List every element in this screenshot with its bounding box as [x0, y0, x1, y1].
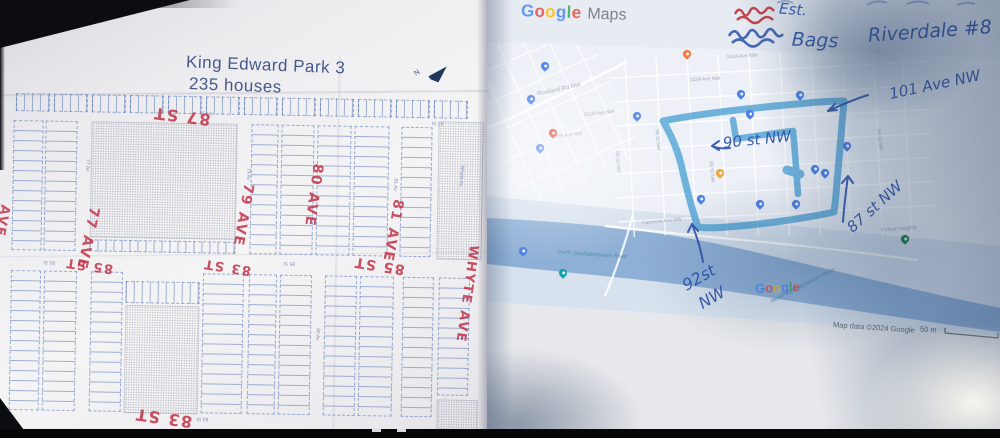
lot-block [201, 273, 244, 414]
handwritten-note: Bags [791, 31, 838, 52]
printed-street-label: 81 Av [392, 178, 398, 191]
stippled-block [436, 121, 483, 260]
lot-block [434, 100, 468, 119]
pen-ink-layer [487, 0, 1000, 438]
blue-scribble [729, 29, 783, 47]
north-arrow-icon: N [410, 63, 450, 90]
svg-text:N: N [413, 69, 421, 78]
lot-block [399, 127, 432, 258]
stippled-block [436, 399, 478, 430]
stippled-block [90, 121, 238, 240]
right-photo-google-map: Rowland Rd NW101A Ave NW100A Ave NW103A … [487, 0, 1000, 438]
handwritten-note: Est. [779, 2, 808, 19]
lot-block [54, 94, 88, 113]
dark-edge [0, 0, 340, 8]
pen-arrows [688, 95, 868, 262]
lot-block [16, 93, 50, 112]
printed-street-label: 85 St [43, 259, 55, 264]
lot-block [282, 98, 316, 117]
dark-edge [0, 0, 5, 170]
lot-block [244, 97, 278, 116]
left-photo-paper-map: King Edward Park 3 235 houses N 87 St87 … [0, 0, 487, 438]
printed-street-label: 83 St [197, 416, 209, 421]
printed-street-label: 77 Av [84, 159, 90, 172]
strip-tab [397, 429, 406, 432]
lot-block [126, 281, 200, 304]
red-scribble [735, 8, 774, 23]
printed-street-label: 87 St [432, 120, 444, 125]
king-edward-plat-map: King Edward Park 3 235 houses N 87 St87 … [0, 0, 487, 438]
lot-block [323, 275, 357, 416]
lot-block [278, 275, 312, 416]
photo-bottom-strip [0, 429, 1000, 438]
lot-block [42, 271, 77, 412]
lot-block [358, 276, 394, 417]
printed-street-label: 79 Av [245, 168, 251, 181]
lot-block [401, 277, 434, 418]
lot-block [247, 274, 277, 414]
lot-block [396, 100, 430, 119]
photo-of-two-paper-maps: King Edward Park 3 235 houses N 87 St87 … [0, 0, 1000, 438]
stippled-block [124, 305, 200, 414]
printed-street-label: 85 St [283, 260, 295, 265]
lot-block [89, 271, 123, 412]
scale-label: 50 m [920, 324, 937, 334]
printed-street-label: 80 Av [314, 328, 320, 341]
strip-tab [372, 429, 381, 432]
lot-block [43, 121, 77, 252]
lot-block [92, 94, 126, 113]
lot-block [358, 99, 392, 118]
lot-block [9, 270, 41, 411]
printed-street-label: Whyte Av [458, 165, 464, 186]
lot-block [320, 98, 354, 117]
lot-block [89, 239, 235, 254]
scale-bar [945, 328, 998, 338]
lot-block [11, 120, 43, 251]
map-title-line2: 235 houses [189, 74, 283, 98]
